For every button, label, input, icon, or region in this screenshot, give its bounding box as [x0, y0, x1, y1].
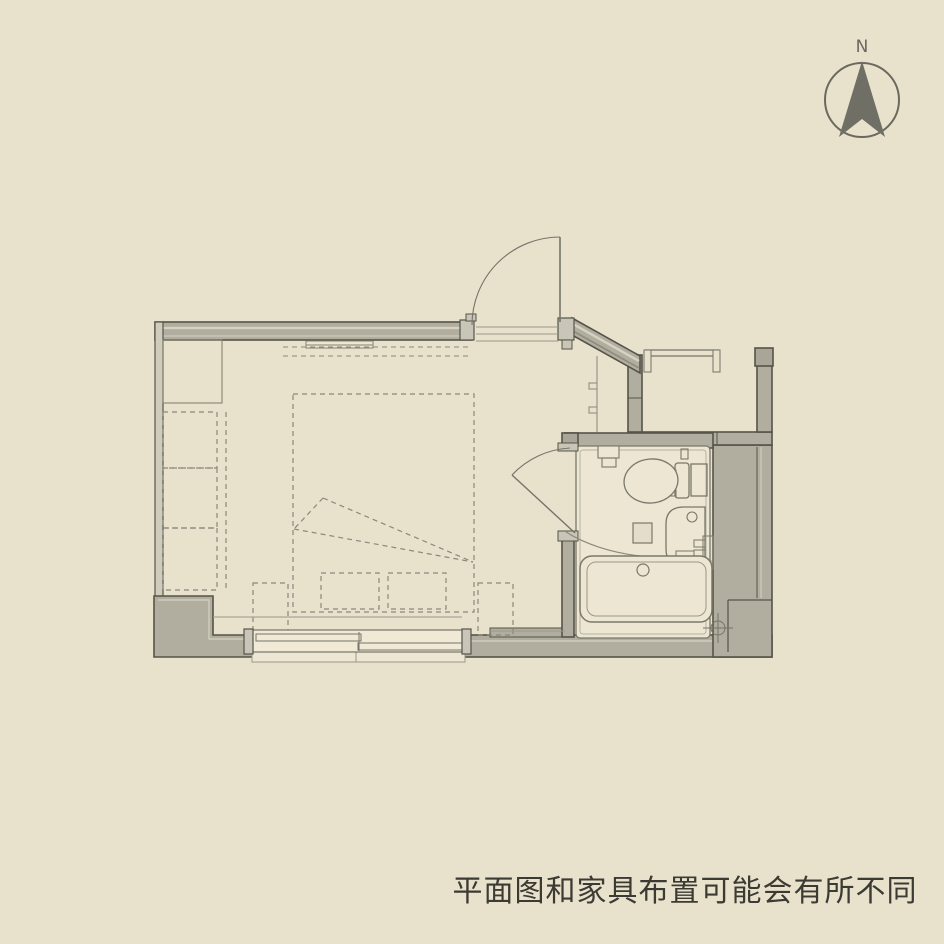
bathroom-door-leaf: [512, 475, 575, 533]
wall-bathroom-left: [562, 540, 574, 637]
compass-north-icon: N: [825, 37, 899, 137]
bathtub-outer: [580, 556, 712, 622]
floor-drain: [633, 523, 652, 543]
bathtub: [580, 556, 712, 622]
bedroom-furniture: [163, 340, 513, 635]
caption-text: 平面图和家具布置可能会有所不同: [440, 866, 930, 910]
wall-diagonal: [572, 318, 640, 373]
pillow-left: [321, 573, 379, 609]
entry-hall: [589, 356, 597, 432]
wall-top: [155, 322, 472, 340]
entrance-door-swing-arc: [472, 237, 560, 325]
closet-alcove: [644, 350, 720, 372]
bathroom-door-swing-arc: [512, 448, 570, 475]
wall-left: [155, 322, 163, 598]
sliding-window: [244, 629, 471, 662]
bed-outline: [293, 394, 474, 612]
north-arrow: [839, 61, 885, 137]
paper-holder: [598, 446, 619, 458]
wardrobe-stack: [163, 412, 226, 592]
pillow-right: [388, 573, 446, 609]
entrance-door: [460, 237, 574, 349]
floor-plan-canvas: N: [0, 0, 944, 944]
wall-bottom-left: [154, 596, 254, 657]
wall-right: [713, 445, 772, 657]
corner-closet: [163, 340, 222, 403]
compass-label: N: [856, 37, 869, 57]
bed: [293, 394, 474, 612]
floor-plan-page: N 平面图和家具布置可能会有所不同: [0, 0, 944, 944]
bathroom: [512, 443, 733, 643]
